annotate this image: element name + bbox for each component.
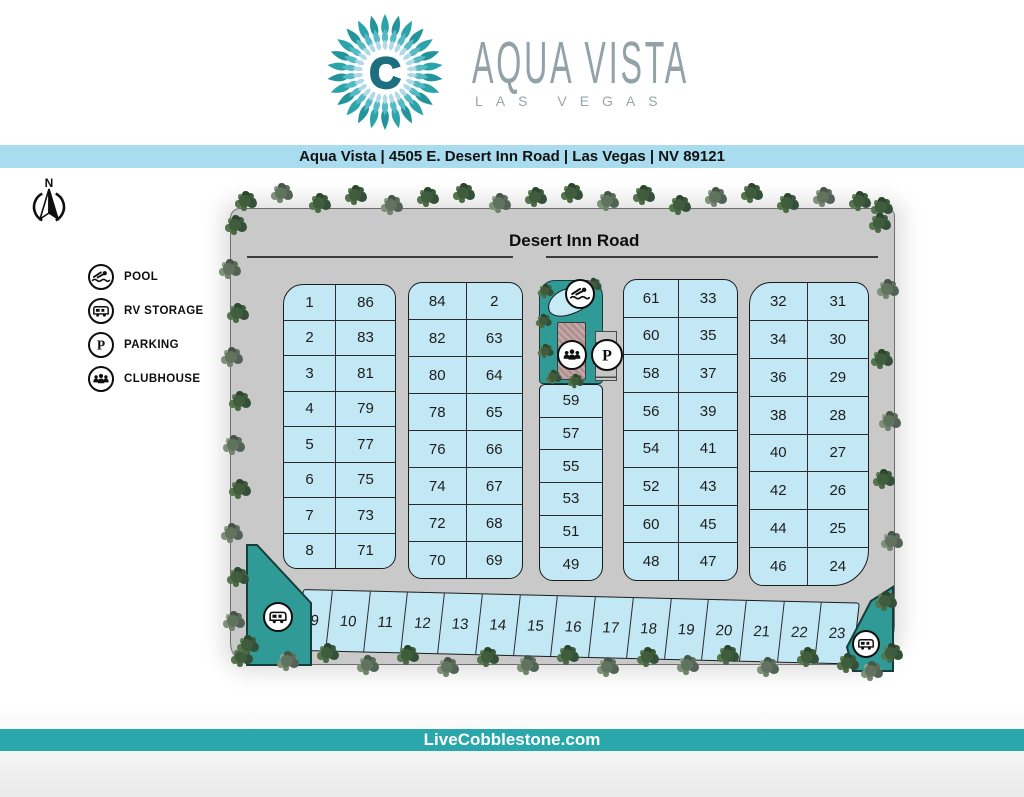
lot-cell: 72 [409, 505, 466, 542]
tree-icon [565, 187, 577, 199]
lot-cell: 24 [808, 548, 868, 585]
tree-icon [541, 287, 550, 296]
pool-icon [565, 279, 595, 309]
pool-icon [88, 264, 114, 290]
tree-icon [549, 373, 558, 382]
tree-icon [235, 651, 247, 663]
lot-cell: 84 [409, 283, 466, 320]
lot-list: 8683817977757371 [336, 285, 395, 568]
legend: POOL RV STORAGE PARKING CLUBHOUSE [88, 264, 204, 400]
legend-label: PARKING [124, 339, 179, 351]
lot-cell: 86 [336, 285, 395, 321]
legend-row-pool: POOL [88, 264, 204, 290]
lot-cell: 56 [624, 393, 678, 431]
lot-cell: 57 [540, 418, 602, 451]
parking-icon [591, 339, 623, 371]
tree-icon [229, 219, 241, 231]
tree-icon [879, 595, 891, 607]
tree-icon [673, 199, 685, 211]
lot-list: 3130292827262524 [808, 283, 868, 585]
tree-icon [233, 483, 245, 495]
lot-cell: 77 [336, 427, 395, 463]
lot-cell: 78 [409, 394, 466, 431]
lot-cell: 40 [750, 435, 807, 473]
tree-icon [885, 535, 897, 547]
tree-icon [225, 527, 237, 539]
lot-list: 263646566676869 [467, 283, 523, 578]
tree-icon [761, 661, 773, 673]
lot-cell: 68 [467, 505, 523, 542]
lot-cell: 47 [679, 543, 737, 580]
lot-cell: 69 [467, 542, 523, 578]
page: C AQUA VISTA LAS VEGAS Aqua Vista | 4505… [0, 0, 1024, 797]
lot-cell: 65 [467, 394, 523, 431]
clubhouse-icon [557, 340, 587, 370]
lot-list: 3234363840424446 [750, 283, 808, 585]
tree-icon [227, 615, 239, 627]
lot-cell: 7 [284, 498, 335, 534]
tree-icon [721, 649, 733, 661]
tree-icon [231, 307, 243, 319]
tree-icon [541, 347, 550, 356]
tree-icon [281, 655, 293, 667]
lot-cell: 66 [467, 431, 523, 468]
lot-cell: 53 [540, 483, 602, 516]
lot-cell: 59 [540, 385, 602, 418]
tree-icon [877, 473, 889, 485]
tree-icon [239, 195, 251, 207]
tree-icon [885, 647, 897, 659]
tree-icon [841, 657, 853, 669]
tree-icon [745, 187, 757, 199]
lot-cell: 81 [336, 356, 395, 392]
lot-cell: 4 [284, 392, 335, 428]
lot-cell: 76 [409, 431, 466, 468]
lot-list: 595755535149 [540, 385, 602, 580]
lot-cell: 83 [336, 321, 395, 357]
tree-icon [321, 647, 333, 659]
lot-block-bottom: 91011121314151617181920212223 [296, 589, 860, 664]
tree-icon [875, 201, 887, 213]
curb-line [247, 256, 513, 258]
tree-icon [401, 649, 413, 661]
tree-icon [529, 191, 541, 203]
lot-list: 6160585654526048 [624, 280, 679, 580]
lot-cell: 71 [336, 534, 395, 569]
tree-icon [349, 189, 361, 201]
tree-icon [361, 659, 373, 671]
tree-icon [561, 649, 573, 661]
legend-row-rv-storage: RV STORAGE [88, 298, 204, 324]
lot-cell: 61 [624, 280, 678, 318]
tree-icon [865, 665, 877, 677]
lot-cell: 45 [679, 506, 737, 544]
lot-block-2: 8482807876747270 263646566676869 [408, 282, 523, 579]
tree-icon [385, 199, 397, 211]
tree-icon [223, 263, 235, 275]
logo-center-letter: C [370, 49, 401, 97]
tree-icon [709, 191, 721, 203]
tree-icon [781, 197, 793, 209]
lot-cell: 64 [467, 357, 523, 394]
lot-cell: 82 [409, 320, 466, 357]
legend-row-parking: PARKING [88, 332, 204, 358]
tree-icon [875, 353, 887, 365]
lot-cell: 6 [284, 463, 335, 499]
legend-label: CLUBHOUSE [124, 373, 200, 385]
lot-cell: 42 [750, 472, 807, 510]
lot-cell: 54 [624, 431, 678, 469]
curb-line [546, 256, 878, 258]
lot-block-1: 12345678 8683817977757371 [283, 284, 396, 569]
tree-icon [883, 415, 895, 427]
tree-icon [233, 395, 245, 407]
lot-cell: 29 [808, 359, 868, 397]
lot-cell: 2 [467, 283, 523, 320]
lot-cell: 60 [624, 318, 678, 356]
lot-cell: 1 [284, 285, 335, 321]
lot-cell: 41 [679, 431, 737, 469]
lot-cell: 55 [540, 450, 602, 483]
tree-icon [681, 659, 693, 671]
lot-cell: 43 [679, 468, 737, 506]
lot-cell: 70 [409, 542, 466, 578]
tree-icon [641, 651, 653, 663]
legend-row-clubhouse: CLUBHOUSE [88, 366, 204, 392]
tree-icon [521, 659, 533, 671]
lot-list: 8482807876747270 [409, 283, 467, 578]
lot-cell: 36 [750, 359, 807, 397]
lot-list: 3335373941434547 [679, 280, 737, 580]
lot-cell: 32 [750, 283, 807, 321]
lot-cell: 28 [808, 397, 868, 435]
site-map: Desert Inn Road 12345678 868381797775737… [230, 208, 895, 665]
lot-cell: 49 [540, 548, 602, 580]
tree-icon [817, 191, 829, 203]
lot-cell: 25 [808, 510, 868, 548]
tree-icon [241, 639, 253, 651]
lot-cell: 60 [624, 506, 678, 544]
tree-icon [225, 351, 237, 363]
tree-icon [637, 189, 649, 201]
clubhouse-icon [88, 366, 114, 392]
rv-storage-icon [88, 298, 114, 324]
tree-icon [601, 661, 613, 673]
tree-icon [457, 187, 469, 199]
road-label: Desert Inn Road [509, 231, 639, 251]
logo: C AQUA VISTA LAS VEGAS [0, 6, 1024, 138]
lot-cell: 2 [284, 321, 335, 357]
lot-cell: 3 [284, 356, 335, 392]
tree-icon [801, 651, 813, 663]
rv-storage-icon [852, 630, 880, 658]
logo-starburst-icon: C [324, 11, 446, 133]
tree-icon [231, 571, 243, 583]
lot-cell: 46 [750, 548, 807, 585]
lot-cell: 30 [808, 321, 868, 359]
tree-icon [481, 651, 493, 663]
footer-banner: LiveCobblestone.com [0, 729, 1024, 751]
lot-cell: 75 [336, 463, 395, 499]
tree-icon [493, 197, 505, 209]
lot-block-5: 3234363840424446 3130292827262524 [749, 282, 869, 586]
lot-cell: 37 [679, 355, 737, 393]
tree-icon [227, 439, 239, 451]
lot-cell: 44 [750, 510, 807, 548]
lot-cell: 52 [624, 468, 678, 506]
north-compass-icon: N [26, 176, 72, 233]
lot-cell: 48 [624, 543, 678, 580]
lot-cell: 79 [336, 392, 395, 428]
lot-cell: 39 [679, 393, 737, 431]
lot-cell: 5 [284, 427, 335, 463]
lot-cell: 51 [540, 516, 602, 549]
compass-label: N [45, 176, 54, 190]
legend-label: POOL [124, 271, 158, 283]
lot-cell: 38 [750, 397, 807, 435]
footer-url-text: LiveCobblestone.com [424, 730, 601, 750]
rv-storage-icon [263, 602, 293, 632]
legend-label: RV STORAGE [124, 305, 204, 317]
lot-cell: 33 [679, 280, 737, 318]
lot-cell: 26 [808, 472, 868, 510]
tree-icon [313, 197, 325, 209]
lot-cell: 73 [336, 498, 395, 534]
lot-cell: 58 [624, 355, 678, 393]
logo-title: AQUA VISTA [472, 27, 632, 97]
tree-icon [873, 217, 885, 229]
parking-icon [88, 332, 114, 358]
tree-icon [601, 195, 613, 207]
tree-icon [853, 195, 865, 207]
address-text: Aqua Vista | 4505 E. Desert Inn Road | L… [299, 148, 725, 165]
lot-cell: 34 [750, 321, 807, 359]
tree-icon [421, 191, 433, 203]
tree-icon [275, 187, 287, 199]
lot-block-3: 595755535149 [539, 384, 603, 581]
lot-cell: 31 [808, 283, 868, 321]
tree-icon [571, 377, 580, 386]
tree-icon [881, 283, 893, 295]
tree-icon [441, 661, 453, 673]
lot-cell: 63 [467, 320, 523, 357]
lot-cell: 27 [808, 435, 868, 473]
tree-icon [539, 317, 548, 326]
lot-cell: 74 [409, 468, 466, 505]
lot-cell: 67 [467, 468, 523, 505]
logo-text: AQUA VISTA LAS VEGAS [472, 35, 700, 109]
lot-cell: 35 [679, 318, 737, 356]
lot-list: 12345678 [284, 285, 336, 568]
lot-block-4: 6160585654526048 3335373941434547 [623, 279, 738, 581]
lot-cell: 80 [409, 357, 466, 394]
address-banner: Aqua Vista | 4505 E. Desert Inn Road | L… [0, 145, 1024, 168]
